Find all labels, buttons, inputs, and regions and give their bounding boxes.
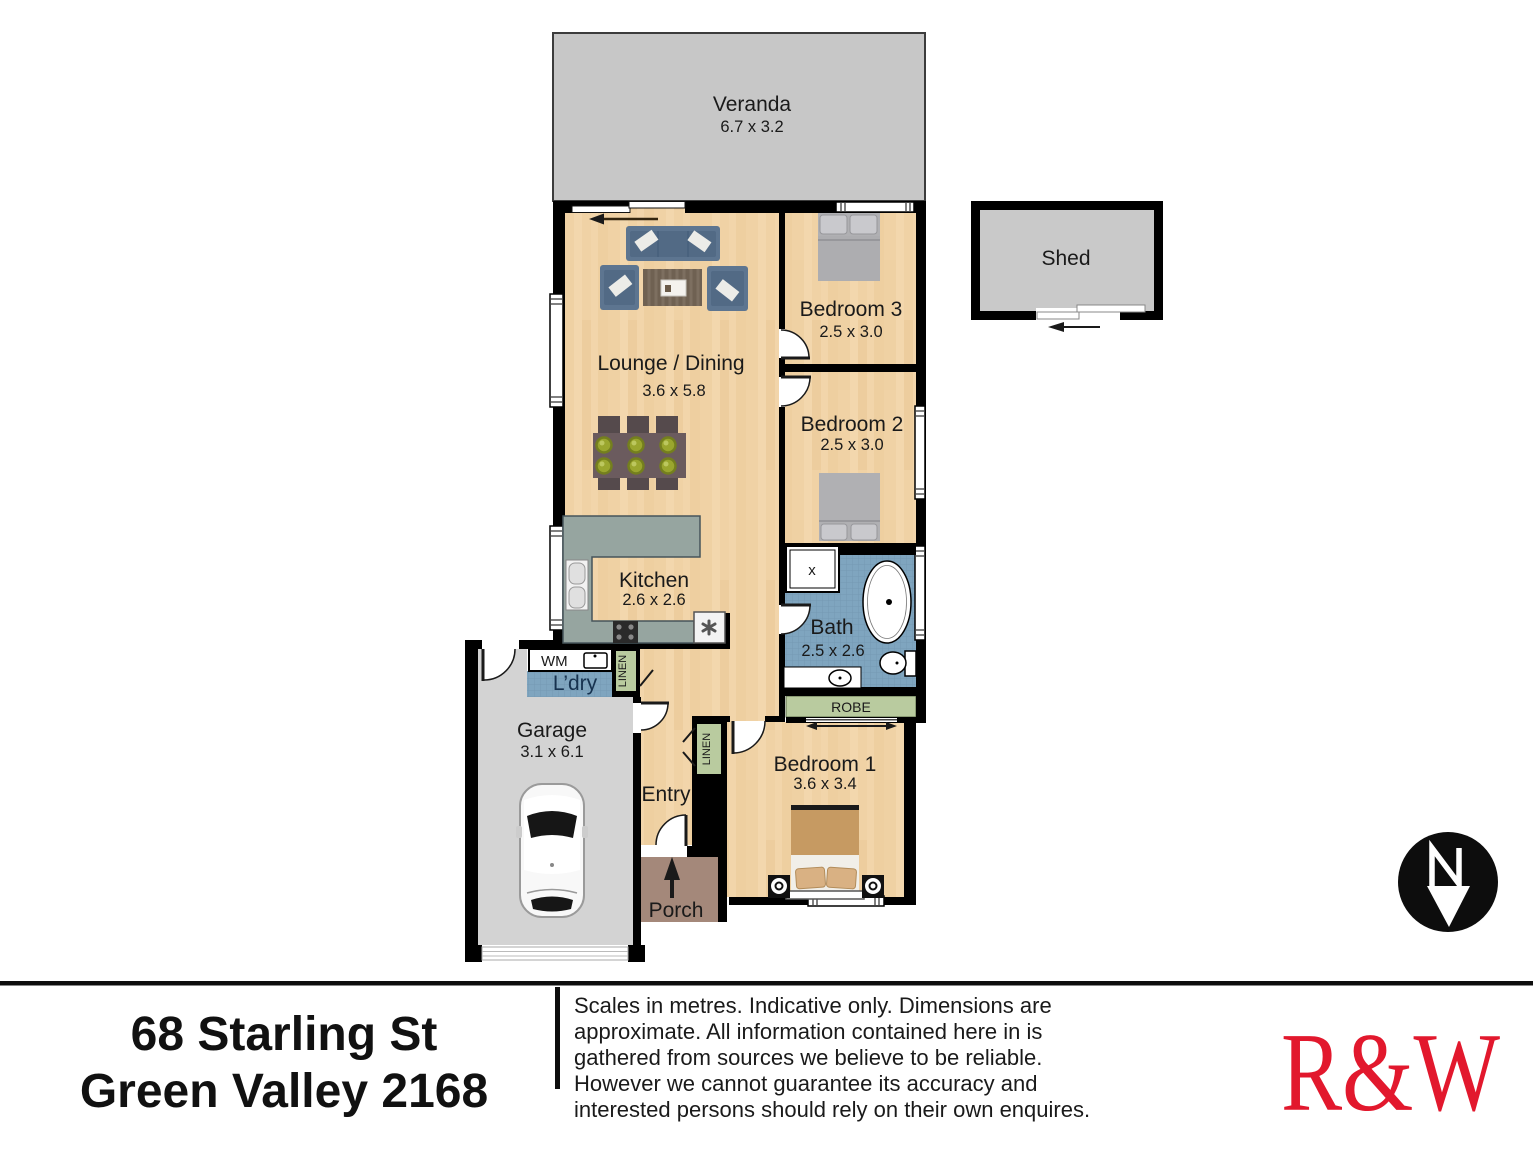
svg-text:R&W: R&W xyxy=(1281,1011,1500,1135)
svg-text:6.7 x 3.2: 6.7 x 3.2 xyxy=(720,118,783,136)
svg-text:3.6 x 3.4: 3.6 x 3.4 xyxy=(793,775,856,793)
svg-text:Bedroom 2: Bedroom 2 xyxy=(801,413,904,436)
svg-text:Entry: Entry xyxy=(641,783,691,806)
svg-text:2.5 x 3.0: 2.5 x 3.0 xyxy=(820,436,883,454)
svg-text:Garage: Garage xyxy=(517,719,587,742)
svg-text:Veranda: Veranda xyxy=(713,93,792,116)
svg-text:Bath: Bath xyxy=(810,616,853,639)
svg-text:2.5 x 2.6: 2.5 x 2.6 xyxy=(801,642,864,660)
svg-text:LINEN: LINEN xyxy=(701,733,713,765)
svg-text:L’dry: L’dry xyxy=(553,672,598,695)
svg-text:Scales in metres. Indicative o: Scales in metres. Indicative only. Dimen… xyxy=(574,993,1052,1018)
svg-text:LINEN: LINEN xyxy=(617,655,629,687)
svg-text:However we cannot guarantee it: However we cannot guarantee its accuracy… xyxy=(574,1071,1037,1096)
svg-text:Bedroom 3: Bedroom 3 xyxy=(800,298,903,321)
svg-text:3.1 x 6.1: 3.1 x 6.1 xyxy=(520,743,583,761)
svg-text:gathered from sources we belie: gathered from sources we believe to be r… xyxy=(574,1045,1042,1070)
svg-text:2.6 x 2.6: 2.6 x 2.6 xyxy=(622,591,685,609)
svg-text:ROBE: ROBE xyxy=(831,699,871,715)
svg-text:68 Starling St: 68 Starling St xyxy=(131,1008,438,1061)
svg-text:Kitchen: Kitchen xyxy=(619,569,689,592)
svg-text:Bedroom 1: Bedroom 1 xyxy=(774,753,877,776)
svg-text:WM: WM xyxy=(541,653,568,670)
svg-text:3.6 x 5.8: 3.6 x 5.8 xyxy=(642,382,705,400)
svg-text:interested persons should rely: interested persons should rely on their … xyxy=(574,1097,1090,1122)
svg-text:Shed: Shed xyxy=(1041,247,1090,270)
svg-text:Lounge / Dining: Lounge / Dining xyxy=(597,352,744,375)
svg-text:Green Valley 2168: Green Valley 2168 xyxy=(80,1065,488,1118)
svg-text:approximate. All information c: approximate. All information contained h… xyxy=(574,1019,1042,1044)
svg-text:2.5 x 3.0: 2.5 x 3.0 xyxy=(819,323,882,341)
svg-text:x: x xyxy=(808,562,816,579)
svg-text:Porch: Porch xyxy=(649,899,704,922)
